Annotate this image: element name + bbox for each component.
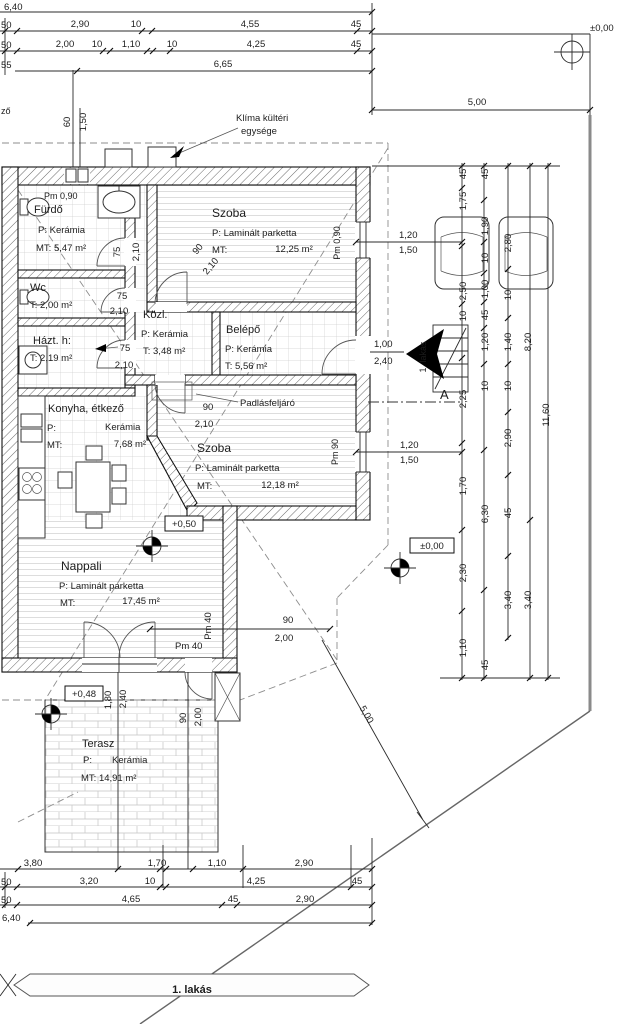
window1-w: 1,20 <box>399 230 418 241</box>
dim-top-640: 6,40 <box>4 2 23 13</box>
door-hazt-h: 2,10 <box>115 360 134 371</box>
sink-bowl-2 <box>21 429 42 442</box>
section-marker-a: A <box>440 387 449 402</box>
parking <box>435 217 553 289</box>
dim-top-10a: 10 <box>131 19 142 30</box>
door-szoba2-w: 90 <box>203 402 214 413</box>
window1-h: 1,50 <box>399 245 418 256</box>
room-furdo-floor: P: Kerámia <box>38 225 86 236</box>
chain3-45: 45 <box>503 508 514 519</box>
wall-szoba1-west <box>147 185 157 302</box>
door-entry-h: 2,40 <box>374 356 393 367</box>
room-konyha-mt: MT: <box>47 440 62 451</box>
chair-top <box>86 446 102 460</box>
dining-table <box>76 462 110 512</box>
chain1-230: 2,30 <box>458 564 469 583</box>
floor-plan-page: 6,40502,90104,5545502,00101,10104,254555… <box>0 0 626 1024</box>
dim-bot-110: 1,10 <box>208 858 227 869</box>
room-furdo-area: MT: 5,47 m² <box>36 243 86 254</box>
parapet-szoba2: Pm 90 <box>330 439 340 465</box>
room-szoba2-area: 12,18 m² <box>261 480 299 491</box>
dim-bot-380: 3,80 <box>24 858 43 869</box>
room-konyha-area: 7,68 m² <box>114 439 146 450</box>
washbasin-bowl <box>103 191 135 213</box>
entry-door-opening <box>355 336 371 374</box>
room-konyha-p: P: <box>47 423 56 434</box>
dim-bot-10: 10 <box>145 876 156 887</box>
dim-500-diagonal-line <box>322 640 429 828</box>
chain1-225: 2,25 <box>458 390 469 409</box>
dim-top-200: 2,00 <box>56 39 75 50</box>
edge-fragment: ző <box>1 106 11 116</box>
room-wc: Wc <box>30 282 46 294</box>
dim-left-150: 1,50 <box>78 113 89 132</box>
chain3-340: 3,40 <box>503 591 514 610</box>
wall-wc-hazt <box>18 318 125 326</box>
room-furdo: Fürdő <box>34 204 63 216</box>
dim-bot-170: 1,70 <box>148 858 167 869</box>
door-furdo-h: 2,10 <box>131 243 142 262</box>
chain1-175: 1,75 <box>458 192 469 211</box>
survey-point <box>554 34 590 70</box>
room-szoba2-mt: MT: <box>197 481 212 492</box>
sink-bowl-1 <box>21 414 42 427</box>
room-szoba2-floor: P: Laminált parketta <box>195 463 280 474</box>
dim-top-45b: 45 <box>351 39 362 50</box>
banner-label: 1. lakás <box>172 984 212 996</box>
room-belepo-area: T: 5,56 m² <box>225 361 267 372</box>
level-ground: ±0,00 <box>420 541 444 552</box>
door-hazt-w: 75 <box>120 343 131 354</box>
chain2-45a: 45 <box>480 169 491 180</box>
attic-access-label: Padlásfeljáró <box>240 398 295 409</box>
level-terasz: +0,48 <box>72 689 96 700</box>
door-furdo-w: 75 <box>112 247 123 258</box>
room-hazt: Házt. h: <box>33 335 71 347</box>
entry-flat-label: 1. lakás <box>418 341 428 373</box>
wall-furdo-wc <box>18 270 125 278</box>
dim-top-665: 6,65 <box>214 59 233 70</box>
floor-plan-drawing: 6,40502,90104,5545502,00101,10104,254555… <box>0 0 626 1024</box>
wall-nappali-east <box>223 506 237 672</box>
chain3-10a: 10 <box>503 290 514 301</box>
chain2-630: 6,30 <box>480 505 491 524</box>
dim-top-10b: 10 <box>92 39 103 50</box>
dim-gate-200: 2,00 <box>275 633 294 644</box>
wall-west <box>2 167 18 672</box>
level-living: +0,50 <box>172 519 196 530</box>
chain2-100: 1,00 <box>480 280 491 299</box>
level-street: ±0,00 <box>590 23 614 34</box>
flue-1 <box>66 169 76 182</box>
dim-bot-640: 6,40 <box>2 913 21 924</box>
terasz-side-door-opening <box>185 658 212 672</box>
chain2-45b: 45 <box>480 310 491 321</box>
room-wc-area: T: 2,00 m² <box>30 300 72 311</box>
flue-2 <box>78 169 88 182</box>
chain3-290: 2,90 <box>503 429 514 448</box>
dim-top-425: 4,25 <box>247 39 266 50</box>
chair-bottom <box>86 514 102 528</box>
dim-bot-50b: 50 <box>1 895 12 906</box>
door-terasz2-w: 90 <box>178 713 189 724</box>
chair-right-1 <box>112 465 126 481</box>
chain2-10b: 10 <box>480 381 491 392</box>
dim-top-455: 4,55 <box>241 19 260 30</box>
dim-top-45a: 45 <box>351 19 362 30</box>
window2-h: 1,50 <box>400 455 419 466</box>
chain1-250: 2,50 <box>458 282 469 301</box>
ac-outdoor-unit-1 <box>105 149 132 167</box>
dim-diag-500: 5,00 <box>357 704 376 726</box>
chain1-110: 1,10 <box>458 639 469 658</box>
room-nappali-floor: P: Laminált parketta <box>59 581 144 592</box>
chair-right-2 <box>112 488 126 504</box>
room-szoba1-mt: MT: <box>212 245 227 256</box>
room-konyha: Konyha, étkező <box>48 403 124 415</box>
dim-bot-45a: 45 <box>352 876 363 887</box>
door-wc-h: 2,10 <box>110 306 129 317</box>
room-terasz-floor: Kerámia <box>112 755 148 766</box>
wall-north <box>2 167 370 185</box>
room-szoba1-area: 12,25 m² <box>275 244 313 255</box>
door-entry-w: 1,00 <box>374 339 393 350</box>
parapet-szoba1: Pm 0,90 <box>332 226 342 260</box>
door-terasz-w: 1,80 <box>103 691 114 710</box>
door-terasz-h: 2,40 <box>118 690 129 709</box>
dim-top-500: 5,00 <box>468 97 487 108</box>
klima-label-1: Klíma kültéri <box>236 113 288 124</box>
chain2-45c: 45 <box>480 660 491 671</box>
dim-top-290: 2,90 <box>71 19 90 30</box>
dim-top-10c: 10 <box>167 39 178 50</box>
chain2-190: 1,90 <box>480 217 491 236</box>
dim-bot-45b: 45 <box>228 894 239 905</box>
room-hazt-area: T: 2,19 m² <box>30 353 72 364</box>
chain5-1160: 11,60 <box>541 403 552 426</box>
dim-top-55: 55 <box>1 60 12 71</box>
dim-bot-290b: 2,90 <box>296 894 315 905</box>
chain3-10b: 10 <box>503 381 514 392</box>
dim-top-50b: 50 <box>1 40 12 51</box>
parapet-furdo: Pm 0,90 <box>44 191 78 201</box>
chair-left <box>58 472 72 488</box>
dim-top-110: 1,10 <box>122 39 141 50</box>
room-nappali-mt: MT: <box>60 598 75 609</box>
dim-gate-90: 90 <box>283 615 294 626</box>
dim-bot-50a: 50 <box>1 877 12 888</box>
room-terasz-area: MT: 14,91 m² <box>81 773 136 784</box>
szoba2-door-opening <box>155 375 185 385</box>
wall-kozl-belepo <box>212 312 220 375</box>
dim-bot-465: 4,65 <box>122 894 141 905</box>
room-kozl: Közl. <box>143 309 167 321</box>
window2-w: 1,20 <box>400 440 419 451</box>
chain3-140: 1,40 <box>503 333 514 352</box>
dim-bot-290a: 2,90 <box>295 858 314 869</box>
room-szoba1-floor: P: Laminált parketta <box>212 228 297 239</box>
room-terasz-p: P: <box>83 755 92 766</box>
chain4-340: 3,40 <box>523 591 534 610</box>
door-wc-w: 75 <box>117 291 128 302</box>
wall-szoba2-north <box>185 375 356 385</box>
room-nappali: Nappali <box>61 559 102 573</box>
room-szoba1: Szoba <box>212 206 246 220</box>
parapet-nappali-v: Pm 40 <box>203 612 214 639</box>
stove <box>19 468 45 500</box>
parapet-nappali-h: Pm 40 <box>175 641 202 652</box>
room-terasz: Terasz <box>82 738 114 750</box>
room-belepo: Belépő <box>226 324 260 336</box>
room-nappali-area: 17,45 m² <box>122 596 160 607</box>
room-szoba2: Szoba <box>197 441 231 455</box>
dim-left-60: 60 <box>62 117 73 128</box>
klima-label-2: egysége <box>241 126 277 137</box>
chain1-45a: 45 <box>458 169 469 180</box>
dim-bot-425: 4,25 <box>247 876 266 887</box>
wall-south-east <box>187 506 356 520</box>
chain2-10a: 10 <box>480 253 491 264</box>
chain4-820: 8,20 <box>523 333 534 352</box>
dim-bot-320: 3,20 <box>80 876 99 887</box>
wall-hazt-konyha <box>18 388 135 396</box>
chain3-280: 2,80 <box>503 234 514 253</box>
chain1-170: 1,70 <box>458 477 469 496</box>
wall-szoba2-north-west <box>125 375 155 385</box>
terasz-door-swing <box>185 672 212 699</box>
room-kozl-area: T: 3,48 m² <box>143 346 185 357</box>
chain2-120: 1,20 <box>480 333 491 352</box>
room-belepo-floor: P: Kerámia <box>225 344 273 355</box>
dim-top-50a: 50 <box>1 20 12 31</box>
chain1-10: 10 <box>458 311 469 322</box>
door-terasz2-h: 2,00 <box>193 708 204 727</box>
french-door-opening <box>82 658 157 672</box>
room-konyha-floor: Kerámia <box>105 422 141 433</box>
door-szoba2-h: 2,10 <box>195 419 214 430</box>
room-kozl-floor: P: Kerámia <box>141 329 189 340</box>
